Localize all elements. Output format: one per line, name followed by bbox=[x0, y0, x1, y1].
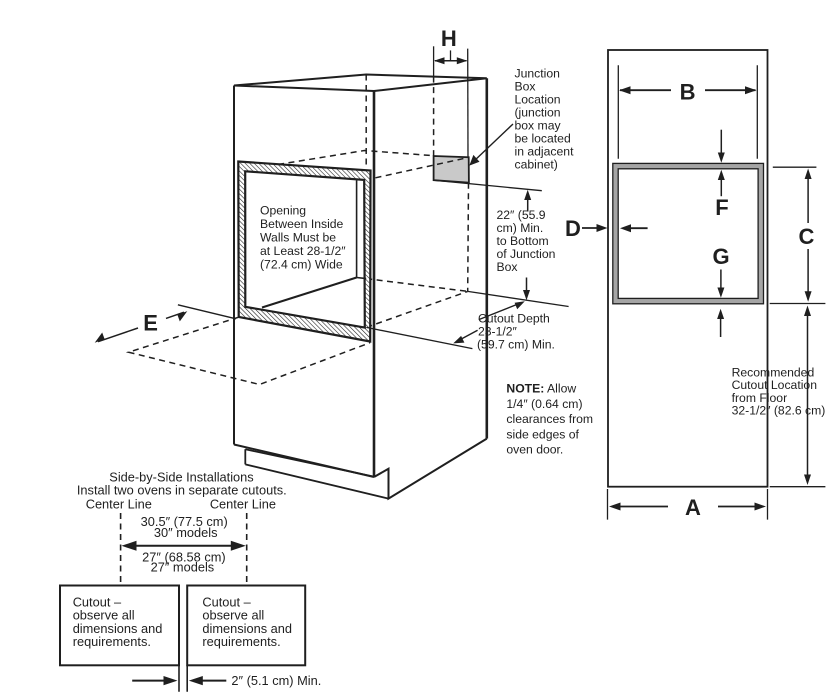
svg-text:Between Inside: Between Inside bbox=[260, 217, 344, 231]
svg-text:NOTE: Allow: NOTE: Allow bbox=[506, 382, 576, 396]
svg-text:Box: Box bbox=[515, 79, 536, 93]
svg-text:box may: box may bbox=[515, 118, 562, 132]
svg-text:of Junction: of Junction bbox=[497, 247, 556, 261]
svg-text:at Least 28-1/2″: at Least 28-1/2″ bbox=[260, 244, 346, 258]
svg-text:clearances from: clearances from bbox=[506, 412, 593, 426]
svg-text:Walls Must be: Walls Must be bbox=[260, 230, 336, 244]
svg-text:D: D bbox=[565, 216, 581, 241]
svg-text:32-1/2″ (82.6 cm): 32-1/2″ (82.6 cm) bbox=[732, 404, 826, 418]
svg-text:27″ models: 27″ models bbox=[151, 560, 215, 575]
svg-text:(junction: (junction bbox=[515, 105, 561, 119]
svg-text:H: H bbox=[441, 26, 457, 51]
svg-text:Center Line: Center Line bbox=[86, 496, 152, 511]
svg-text:A: A bbox=[685, 495, 701, 520]
svg-text:to Bottom: to Bottom bbox=[497, 234, 549, 248]
svg-text:Center Line: Center Line bbox=[210, 496, 276, 511]
svg-text:Opening: Opening bbox=[260, 204, 306, 218]
svg-text:requirements.: requirements. bbox=[202, 634, 280, 649]
svg-text:C: C bbox=[799, 224, 815, 249]
svg-text:F: F bbox=[715, 195, 728, 220]
svg-text:in adjacent: in adjacent bbox=[515, 144, 575, 158]
svg-text:E: E bbox=[143, 311, 158, 336]
svg-text:B: B bbox=[680, 80, 696, 105]
svg-text:30″ models: 30″ models bbox=[154, 525, 218, 540]
svg-text:requirements.: requirements. bbox=[73, 634, 151, 649]
svg-text:1/4″ (0.64 cm): 1/4″ (0.64 cm) bbox=[506, 397, 582, 411]
svg-text:Location: Location bbox=[515, 92, 561, 106]
svg-text:(72.4 cm) Wide: (72.4 cm) Wide bbox=[260, 257, 343, 271]
svg-text:G: G bbox=[712, 244, 729, 269]
svg-text:cabinet): cabinet) bbox=[515, 157, 558, 171]
svg-text:2″ (5.1 cm) Min.: 2″ (5.1 cm) Min. bbox=[231, 673, 321, 688]
svg-text:23-1/2″: 23-1/2″ bbox=[478, 325, 518, 339]
svg-text:Box: Box bbox=[497, 260, 518, 274]
svg-text:side edges of: side edges of bbox=[506, 427, 579, 441]
svg-text:be located: be located bbox=[515, 131, 571, 145]
svg-text:Cutout Depth: Cutout Depth bbox=[478, 312, 550, 326]
svg-text:oven door.: oven door. bbox=[506, 443, 563, 457]
svg-text:22″ (55.9: 22″ (55.9 bbox=[497, 208, 546, 222]
svg-text:(59.7 cm) Min.: (59.7 cm) Min. bbox=[477, 338, 555, 352]
svg-text:Install two ovens in separate: Install two ovens in separate cutouts. bbox=[77, 483, 287, 498]
svg-text:Junction: Junction bbox=[515, 66, 560, 80]
svg-text:cm) Min.: cm) Min. bbox=[497, 221, 544, 235]
